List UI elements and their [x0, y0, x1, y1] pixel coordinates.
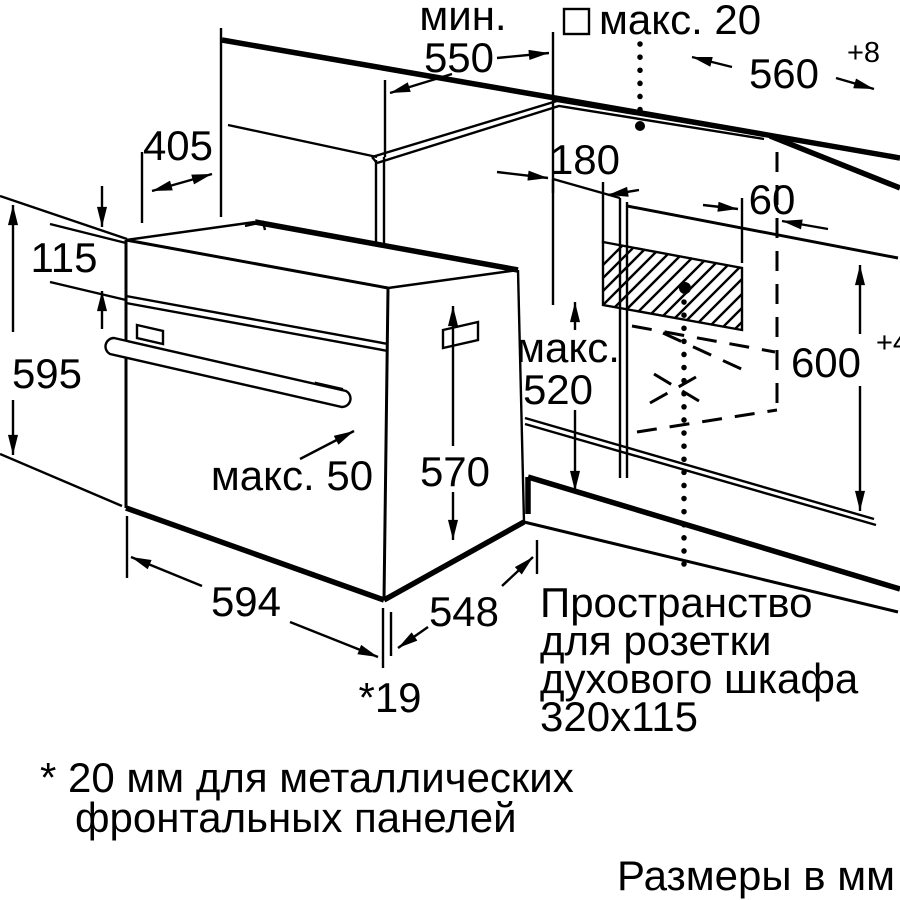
dim-560: 560 +8: [692, 37, 880, 97]
cabinetry-lines: [0, 40, 900, 612]
oven: [105, 222, 524, 600]
dim-min-550: мин. 550: [385, 0, 553, 193]
dim-600: 600 +4: [791, 265, 900, 511]
dim-180-value: 180: [550, 136, 620, 183]
oven-side-bracket: [443, 322, 478, 348]
socket-point-marker: [679, 282, 691, 294]
dim-560-value: 560: [749, 50, 819, 97]
dim-max-20-label: макс. 20: [599, 0, 761, 43]
oven-top-back-edge: [255, 222, 518, 270]
dim-548-value: 548: [429, 588, 499, 635]
dim-min-550-value: 550: [424, 34, 494, 81]
units-note: Размеры в мм: [617, 852, 895, 899]
dim-405: 405: [142, 28, 221, 223]
handle-bracket-left: [137, 325, 163, 344]
dim-max-520-label: макс.: [516, 324, 620, 371]
oven-side-top-edge: [388, 270, 518, 288]
socket-area-hatch: [603, 242, 742, 330]
dim-60: 60: [703, 176, 828, 263]
installation-diagram: мин. 550 макс. 20 560 +8 405 1: [0, 0, 900, 900]
dim-max-50-label: макс. 50: [211, 452, 373, 499]
panel-thickness-point: [635, 121, 645, 131]
dim-560-tolerance: +8: [847, 37, 880, 69]
dim-595-value: 595: [12, 350, 82, 397]
dim-115-value: 115: [31, 234, 98, 281]
socket-note-line4: 320x115: [540, 693, 698, 740]
right-niche-shelf-top: [525, 418, 874, 519]
dim-594-value: 594: [211, 578, 281, 625]
right-niche-shelf-front: [525, 424, 876, 525]
base-front-edge: [528, 477, 900, 589]
hidden-cross-a: [650, 377, 696, 403]
dim-600-value: 600: [791, 339, 861, 386]
dim-570-value: 570: [420, 448, 490, 495]
dim-115: 115: [31, 186, 126, 329]
dim-19: *19: [358, 608, 421, 721]
dim-max-20: макс. 20: [564, 0, 761, 43]
dim-600-tolerance: +4: [876, 327, 900, 359]
left-cabinet-top-edge: [0, 196, 127, 239]
footnote-line2: фронтальных панелей: [75, 794, 517, 841]
left-cabinet-bottom-edge: [0, 454, 122, 506]
door-top-edge: [126, 303, 388, 351]
dim-570: 570: [420, 306, 490, 540]
oven-front-right-edge: [384, 288, 388, 600]
hidden-floor-edge: [637, 410, 777, 432]
dim-19-value: *19: [358, 674, 421, 721]
left-panel-top-edge: [228, 125, 377, 157]
dim-max-520: макс. 520: [516, 302, 620, 491]
panel-square-icon: [564, 9, 589, 34]
control-panel-lower-edge: [126, 296, 388, 344]
diagram-canvas: мин. 550 макс. 20 560 +8 405 1: [0, 0, 900, 900]
dim-405-value: 405: [143, 122, 213, 169]
dim-max-520-value: 520: [523, 366, 593, 413]
dim-60-value: 60: [749, 176, 796, 223]
dim-max-50: макс. 50: [211, 431, 373, 499]
dim-180: 180: [497, 136, 639, 243]
hidden-back-edge: [632, 326, 775, 352]
oven-handle: [105, 338, 350, 407]
oven-top-left-edge: [126, 222, 255, 240]
oven-front-top-edge: [126, 240, 388, 288]
